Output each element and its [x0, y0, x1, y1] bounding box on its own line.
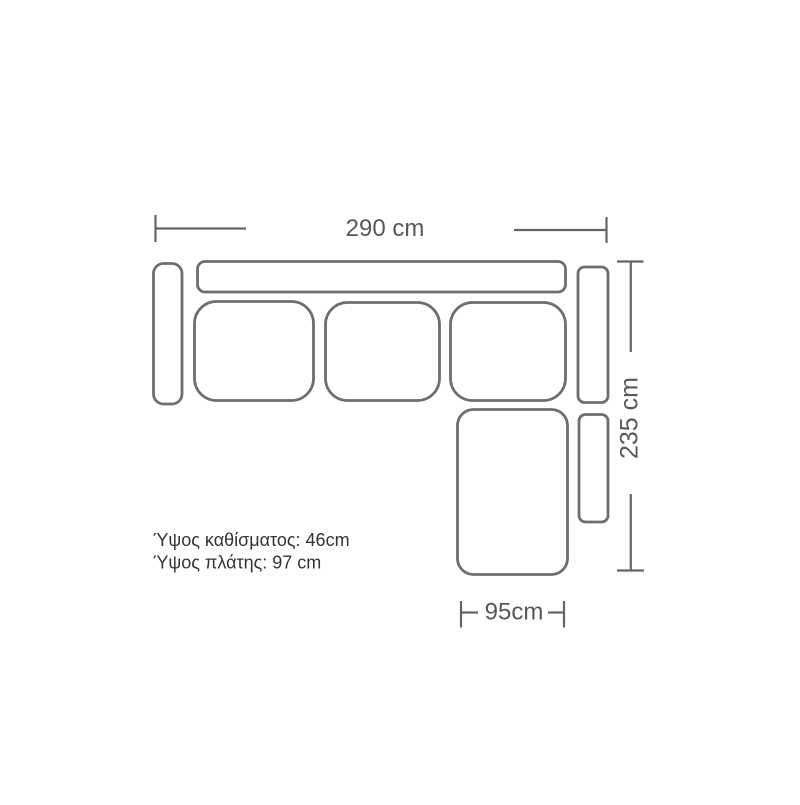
svg-text:95cm: 95cm: [485, 599, 544, 626]
svg-text:290 cm: 290 cm: [346, 215, 425, 242]
svg-text:235 cm: 235 cm: [616, 377, 644, 459]
svg-text:Ύψος καθίσματος: 46cm: Ύψος καθίσματος: 46cm: [153, 530, 350, 550]
svg-text:Ύψος πλάτης: 97 cm: Ύψος πλάτης: 97 cm: [153, 553, 321, 573]
